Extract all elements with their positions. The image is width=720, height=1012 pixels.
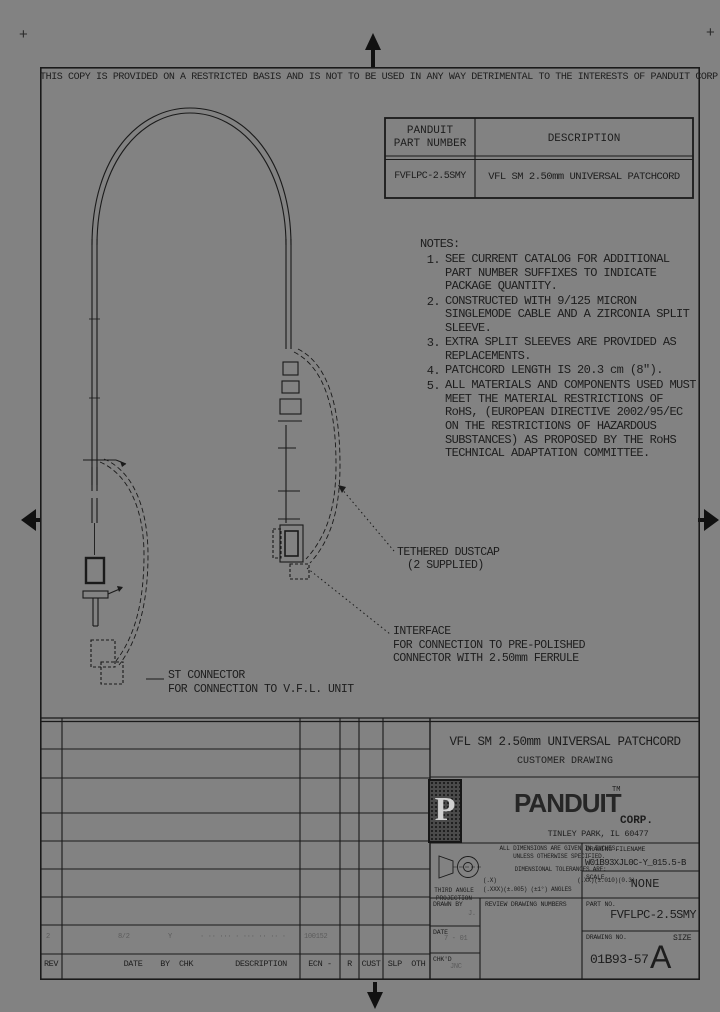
company-address: TINLEY PARK, IL 60477 xyxy=(518,830,678,840)
revision-entry-date: 8/2 xyxy=(118,933,130,941)
part-table-description: VFL SM 2.50mm UNIVERSAL PATCHCORD xyxy=(475,171,693,183)
corp-label: CORP. xyxy=(620,815,653,828)
drawing-no-value: 01B93-57 xyxy=(590,953,648,968)
drawing-filename-value: W01B93XJL0C-Y_015.5-B xyxy=(585,858,686,868)
registration-plus-top-right: + xyxy=(706,24,715,41)
panduit-wordmark: PANDUIT xyxy=(514,789,621,819)
callout-dustcap-qty: (2 SUPPLIED) xyxy=(407,559,484,572)
callout-interface: INTERFACE FOR CONNECTION TO PRE-POLISHED… xyxy=(393,625,585,666)
chkd-label: CHK'D xyxy=(433,956,452,963)
callout-st-connector: ST CONNECTOR FOR CONNECTION TO V.F.L. UN… xyxy=(168,669,354,696)
drawing-linework xyxy=(40,67,700,980)
restricted-use-disclaimer: THIS COPY IS PROVIDED ON A RESTRICTED BA… xyxy=(40,72,700,84)
note-item: 2.CONSTRUCTED WITH 9/125 MICRON SINGLEMO… xyxy=(420,295,702,336)
r-header: R xyxy=(341,959,358,969)
drawn-by-value: J. xyxy=(468,910,476,918)
revision-entry-rev: 2 xyxy=(46,933,50,941)
drawing-filename-label: DRAWING FILENAME xyxy=(586,846,645,853)
drawing-sheet-page: + + xyxy=(0,0,720,1012)
note-item: 4.PATCHCORD LENGTH IS 20.3 cm (8"). xyxy=(420,364,702,378)
ecn-header: ECN - xyxy=(301,959,339,969)
revision-entry-ecn: 100152 xyxy=(304,933,327,941)
note-item: 5.ALL MATERIALS AND COMPONENTS USED MUST… xyxy=(420,379,702,460)
scale-value: NONE xyxy=(600,878,690,892)
review-drawing-numbers-label: REVIEW DRAWING NUMBERS xyxy=(485,901,566,908)
part-table-part-number: FVFLPC-2.5SMY xyxy=(385,171,475,183)
note-item: 3.EXTRA SPLIT SLEEVES ARE PROVIDED AS RE… xyxy=(420,336,702,363)
part-no-value: FVFLPC-2.5SMY xyxy=(592,909,696,923)
revision-entry-description: · ·· ··· · ··· ·· ·· · xyxy=(200,933,286,941)
drawing-no-label: DRAWING NO. xyxy=(586,934,627,941)
slp-oth-header: SLP OTH xyxy=(384,959,429,969)
trademark-symbol: TM xyxy=(612,786,620,794)
notes-block: NOTES: 1.SEE CURRENT CATALOG FOR ADDITIO… xyxy=(420,237,702,462)
size-value: A xyxy=(650,939,671,976)
size-label: SIZE xyxy=(673,934,691,943)
panduit-p-logo: P xyxy=(428,779,462,843)
note-item: 1.SEE CURRENT CATALOG FOR ADDITIONAL PAR… xyxy=(420,253,702,294)
drawing-title: VFL SM 2.50mm UNIVERSAL PATCHCORD xyxy=(434,735,696,749)
date-header: DATE xyxy=(118,959,148,969)
rev-header: REV xyxy=(41,959,61,969)
cust-header: CUST xyxy=(360,959,382,969)
callout-tethered-dustcap: TETHERED DUSTCAP xyxy=(397,546,499,559)
by-header: BY xyxy=(156,959,174,969)
drawing-sheet: THIS COPY IS PROVIDED ON A RESTRICTED BA… xyxy=(40,67,700,980)
date-value: 7 - 01 xyxy=(444,935,467,943)
notes-heading: NOTES: xyxy=(420,237,702,251)
drawn-by-label: DRAWN BY xyxy=(433,901,463,908)
chk-header: CHK xyxy=(175,959,197,969)
chkd-value: JNC xyxy=(450,963,462,971)
part-table-header-part-number: PANDUITPART NUMBER xyxy=(385,125,475,150)
drawing-subtitle: CUSTOMER DRAWING xyxy=(434,756,696,768)
description-header: DESCRIPTION xyxy=(218,959,304,969)
revision-entry-by: Y xyxy=(168,933,172,941)
part-table-header-description: DESCRIPTION xyxy=(475,133,693,146)
registration-plus-top-left: + xyxy=(19,26,28,43)
